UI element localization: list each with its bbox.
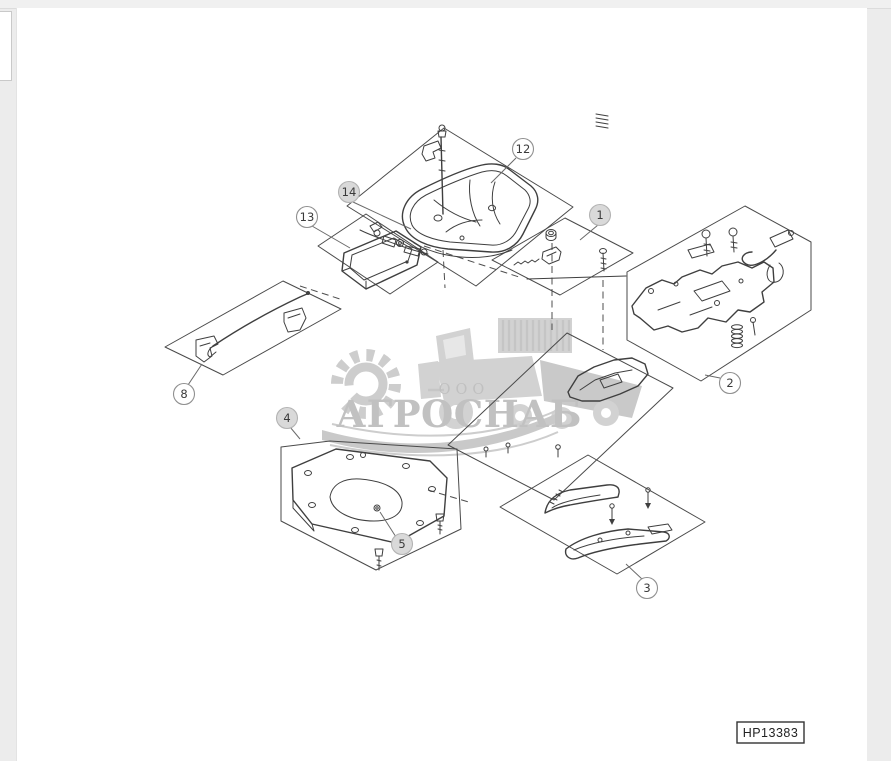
small-spring bbox=[596, 114, 608, 128]
callout-13[interactable]: 13 bbox=[297, 207, 351, 249]
handle-part bbox=[342, 231, 421, 289]
base-plate bbox=[292, 449, 447, 570]
callout-3[interactable]: 3 bbox=[626, 564, 658, 599]
panel-8 bbox=[165, 281, 341, 375]
group-outlines bbox=[165, 128, 811, 574]
callout-8-label: 8 bbox=[180, 387, 187, 401]
hardware-kit bbox=[514, 114, 608, 271]
watermark: ООО АГРОСНАБ bbox=[322, 318, 642, 455]
panel-3 bbox=[500, 455, 705, 574]
part-number-label: HP13383 bbox=[737, 722, 804, 743]
panel-12 bbox=[347, 128, 573, 286]
release-rod bbox=[196, 291, 310, 362]
callout-2[interactable]: 2 bbox=[705, 373, 741, 394]
callout-5-label: 5 bbox=[398, 537, 405, 551]
slide-rails bbox=[545, 485, 672, 559]
callout-2-label: 2 bbox=[726, 376, 733, 390]
callout-14-label: 14 bbox=[342, 185, 357, 199]
callout-5[interactable]: 5 bbox=[380, 512, 413, 555]
part-number-text: HP13383 bbox=[743, 726, 799, 740]
callout-4-label: 4 bbox=[283, 411, 290, 425]
callout-4[interactable]: 4 bbox=[277, 408, 301, 440]
callout-12-label: 12 bbox=[516, 142, 531, 156]
callout-14[interactable]: 14 bbox=[339, 182, 412, 230]
plate-bolt bbox=[374, 505, 380, 511]
callout-1-label: 1 bbox=[596, 208, 603, 222]
bracket-spring bbox=[732, 318, 756, 348]
cable-assembly bbox=[742, 230, 793, 282]
panel-1 bbox=[492, 218, 633, 295]
callout-8[interactable]: 8 bbox=[174, 364, 203, 405]
rail-screws bbox=[609, 488, 651, 525]
callout-13-label: 13 bbox=[300, 210, 315, 224]
bracket-screws bbox=[688, 228, 737, 258]
watermark-org-name: АГРОСНАБ bbox=[336, 392, 582, 436]
seat-pan-part bbox=[402, 164, 537, 258]
exploded-view-drawing: ООО АГРОСНАБ bbox=[0, 0, 891, 761]
callout-3-label: 3 bbox=[643, 581, 650, 595]
suspension-bracket bbox=[632, 228, 794, 348]
callout-1[interactable]: 1 bbox=[580, 205, 611, 241]
linkage-parts bbox=[360, 222, 428, 256]
